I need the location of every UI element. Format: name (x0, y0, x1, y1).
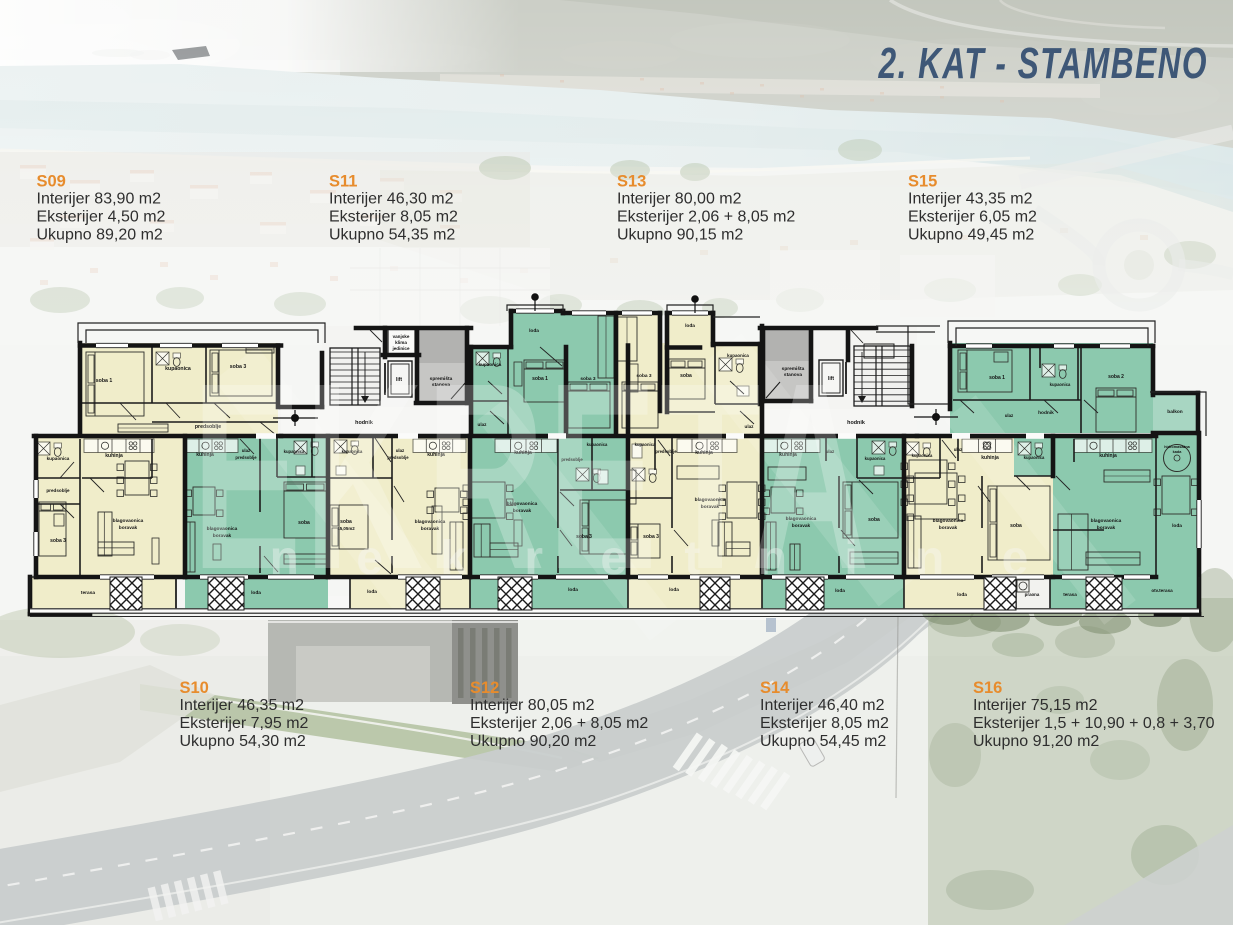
svg-text:S13: S13 (617, 173, 646, 191)
svg-text:Eksterijer 7,95 m2: Eksterijer 7,95 m2 (180, 715, 309, 732)
svg-text:terasa: terasa (81, 590, 95, 596)
svg-text:S16: S16 (973, 679, 1002, 697)
svg-text:kupaonica: kupaonica (1050, 382, 1071, 387)
svg-text:terasa: terasa (1063, 592, 1077, 597)
svg-text:Ukupno 90,15 m2: Ukupno 90,15 m2 (617, 227, 743, 244)
svg-text:S09: S09 (37, 173, 66, 191)
svg-text:soba 3: soba 3 (50, 538, 66, 544)
svg-text:Eksterijer 6,05 m2: Eksterijer 6,05 m2 (908, 209, 1037, 226)
svg-text:Ukupno 89,20 m2: Ukupno 89,20 m2 (37, 227, 163, 244)
svg-text:kuhinja: kuhinja (1099, 453, 1117, 459)
svg-text:kuhinja: kuhinja (105, 453, 123, 459)
svg-text:Eksterijer 2,06 + 8,05 m2: Eksterijer 2,06 + 8,05 m2 (470, 715, 648, 732)
svg-text:S12: S12 (470, 679, 499, 697)
svg-text:Ukupno 54,45 m2: Ukupno 54,45 m2 (760, 733, 886, 750)
svg-text:blagovaonica: blagovaonica (1091, 518, 1122, 524)
svg-text:balkon: balkon (1167, 409, 1183, 415)
svg-text:Interijer 80,05 m2: Interijer 80,05 m2 (470, 697, 595, 714)
svg-text:otv.terasa: otv.terasa (1151, 588, 1173, 593)
svg-text:soba 2: soba 2 (1108, 374, 1124, 380)
svg-text:hodnik: hodnik (1038, 410, 1054, 416)
svg-text:soba: soba (1010, 523, 1022, 529)
svg-text:predsoblje: predsoblje (46, 488, 70, 493)
svg-text:kupaonica: kupaonica (47, 456, 70, 461)
svg-text:Ukupno 90,20 m2: Ukupno 90,20 m2 (470, 733, 596, 750)
svg-text:S15: S15 (908, 173, 937, 191)
svg-text:blagovaonica: blagovaonica (113, 518, 144, 524)
svg-text:kuhinja: kuhinja (981, 455, 999, 461)
svg-text:Eksterijer 8,05 m2: Eksterijer 8,05 m2 (329, 209, 458, 226)
svg-text:Eksterijer 2,06 + 8,05 m2: Eksterijer 2,06 + 8,05 m2 (617, 209, 795, 226)
svg-text:boravak: boravak (939, 525, 958, 531)
svg-text:S11: S11 (329, 173, 357, 191)
svg-text:kupaonica: kupaonica (1024, 455, 1045, 460)
svg-text:praona: praona (1025, 592, 1040, 597)
svg-text:S10: S10 (180, 679, 209, 697)
svg-text:S14: S14 (760, 679, 790, 697)
svg-text:Ukupno 49,45 m2: Ukupno 49,45 m2 (908, 227, 1034, 244)
svg-text:soba 1: soba 1 (96, 378, 113, 384)
svg-text:lođa: lođa (1172, 523, 1182, 529)
svg-text:boravak: boravak (119, 525, 138, 531)
svg-text:Ukupno 91,20 m2: Ukupno 91,20 m2 (973, 733, 1099, 750)
svg-text:Eksterijer 1,5 + 10,90 + 0,8 +: Eksterijer 1,5 + 10,90 + 0,8 + 3,70 (973, 715, 1215, 732)
svg-text:Eksterijer 8,05 m2: Eksterijer 8,05 m2 (760, 715, 889, 732)
svg-text:Ukupno 54,30 m2: Ukupno 54,30 m2 (180, 733, 306, 750)
svg-text:Interijer 83,90 m2: Interijer 83,90 m2 (37, 191, 162, 208)
svg-text:kupaonica: kupaonica (912, 453, 933, 458)
svg-text:blagovaonica: blagovaonica (933, 518, 964, 524)
svg-text:kupaonica: kupaonica (165, 366, 191, 372)
svg-text:Interijer 46,35 m2: Interijer 46,35 m2 (180, 697, 305, 714)
svg-text:Interijer 80,00 m2: Interijer 80,00 m2 (617, 191, 742, 208)
svg-text:Interijer 43,35 m2: Interijer 43,35 m2 (908, 191, 1033, 208)
svg-text:n e k r e t n i n e: n e k r e t n i n e (270, 532, 1051, 585)
svg-text:hidromasažna: hidromasažna (1164, 445, 1190, 449)
svg-text:Ukupno 54,35 m2: Ukupno 54,35 m2 (329, 227, 455, 244)
svg-text:ulaz: ulaz (954, 447, 963, 452)
svg-text:Interijer 75,15 m2: Interijer 75,15 m2 (973, 697, 1098, 714)
svg-text:boravak: boravak (1097, 525, 1116, 531)
svg-text:ulaz: ulaz (1005, 413, 1014, 418)
svg-text:kada: kada (1173, 450, 1183, 454)
svg-text:Interijer 46,30 m2: Interijer 46,30 m2 (329, 191, 454, 208)
svg-text:Interijer 46,40 m2: Interijer 46,40 m2 (760, 697, 885, 714)
svg-text:Eksterijer 4,50 m2: Eksterijer 4,50 m2 (37, 209, 166, 226)
svg-text:lođa: lođa (957, 592, 967, 598)
svg-text:2. KAT - STAMBENO: 2. KAT - STAMBENO (878, 39, 1208, 88)
svg-text:soba 1: soba 1 (989, 375, 1005, 381)
